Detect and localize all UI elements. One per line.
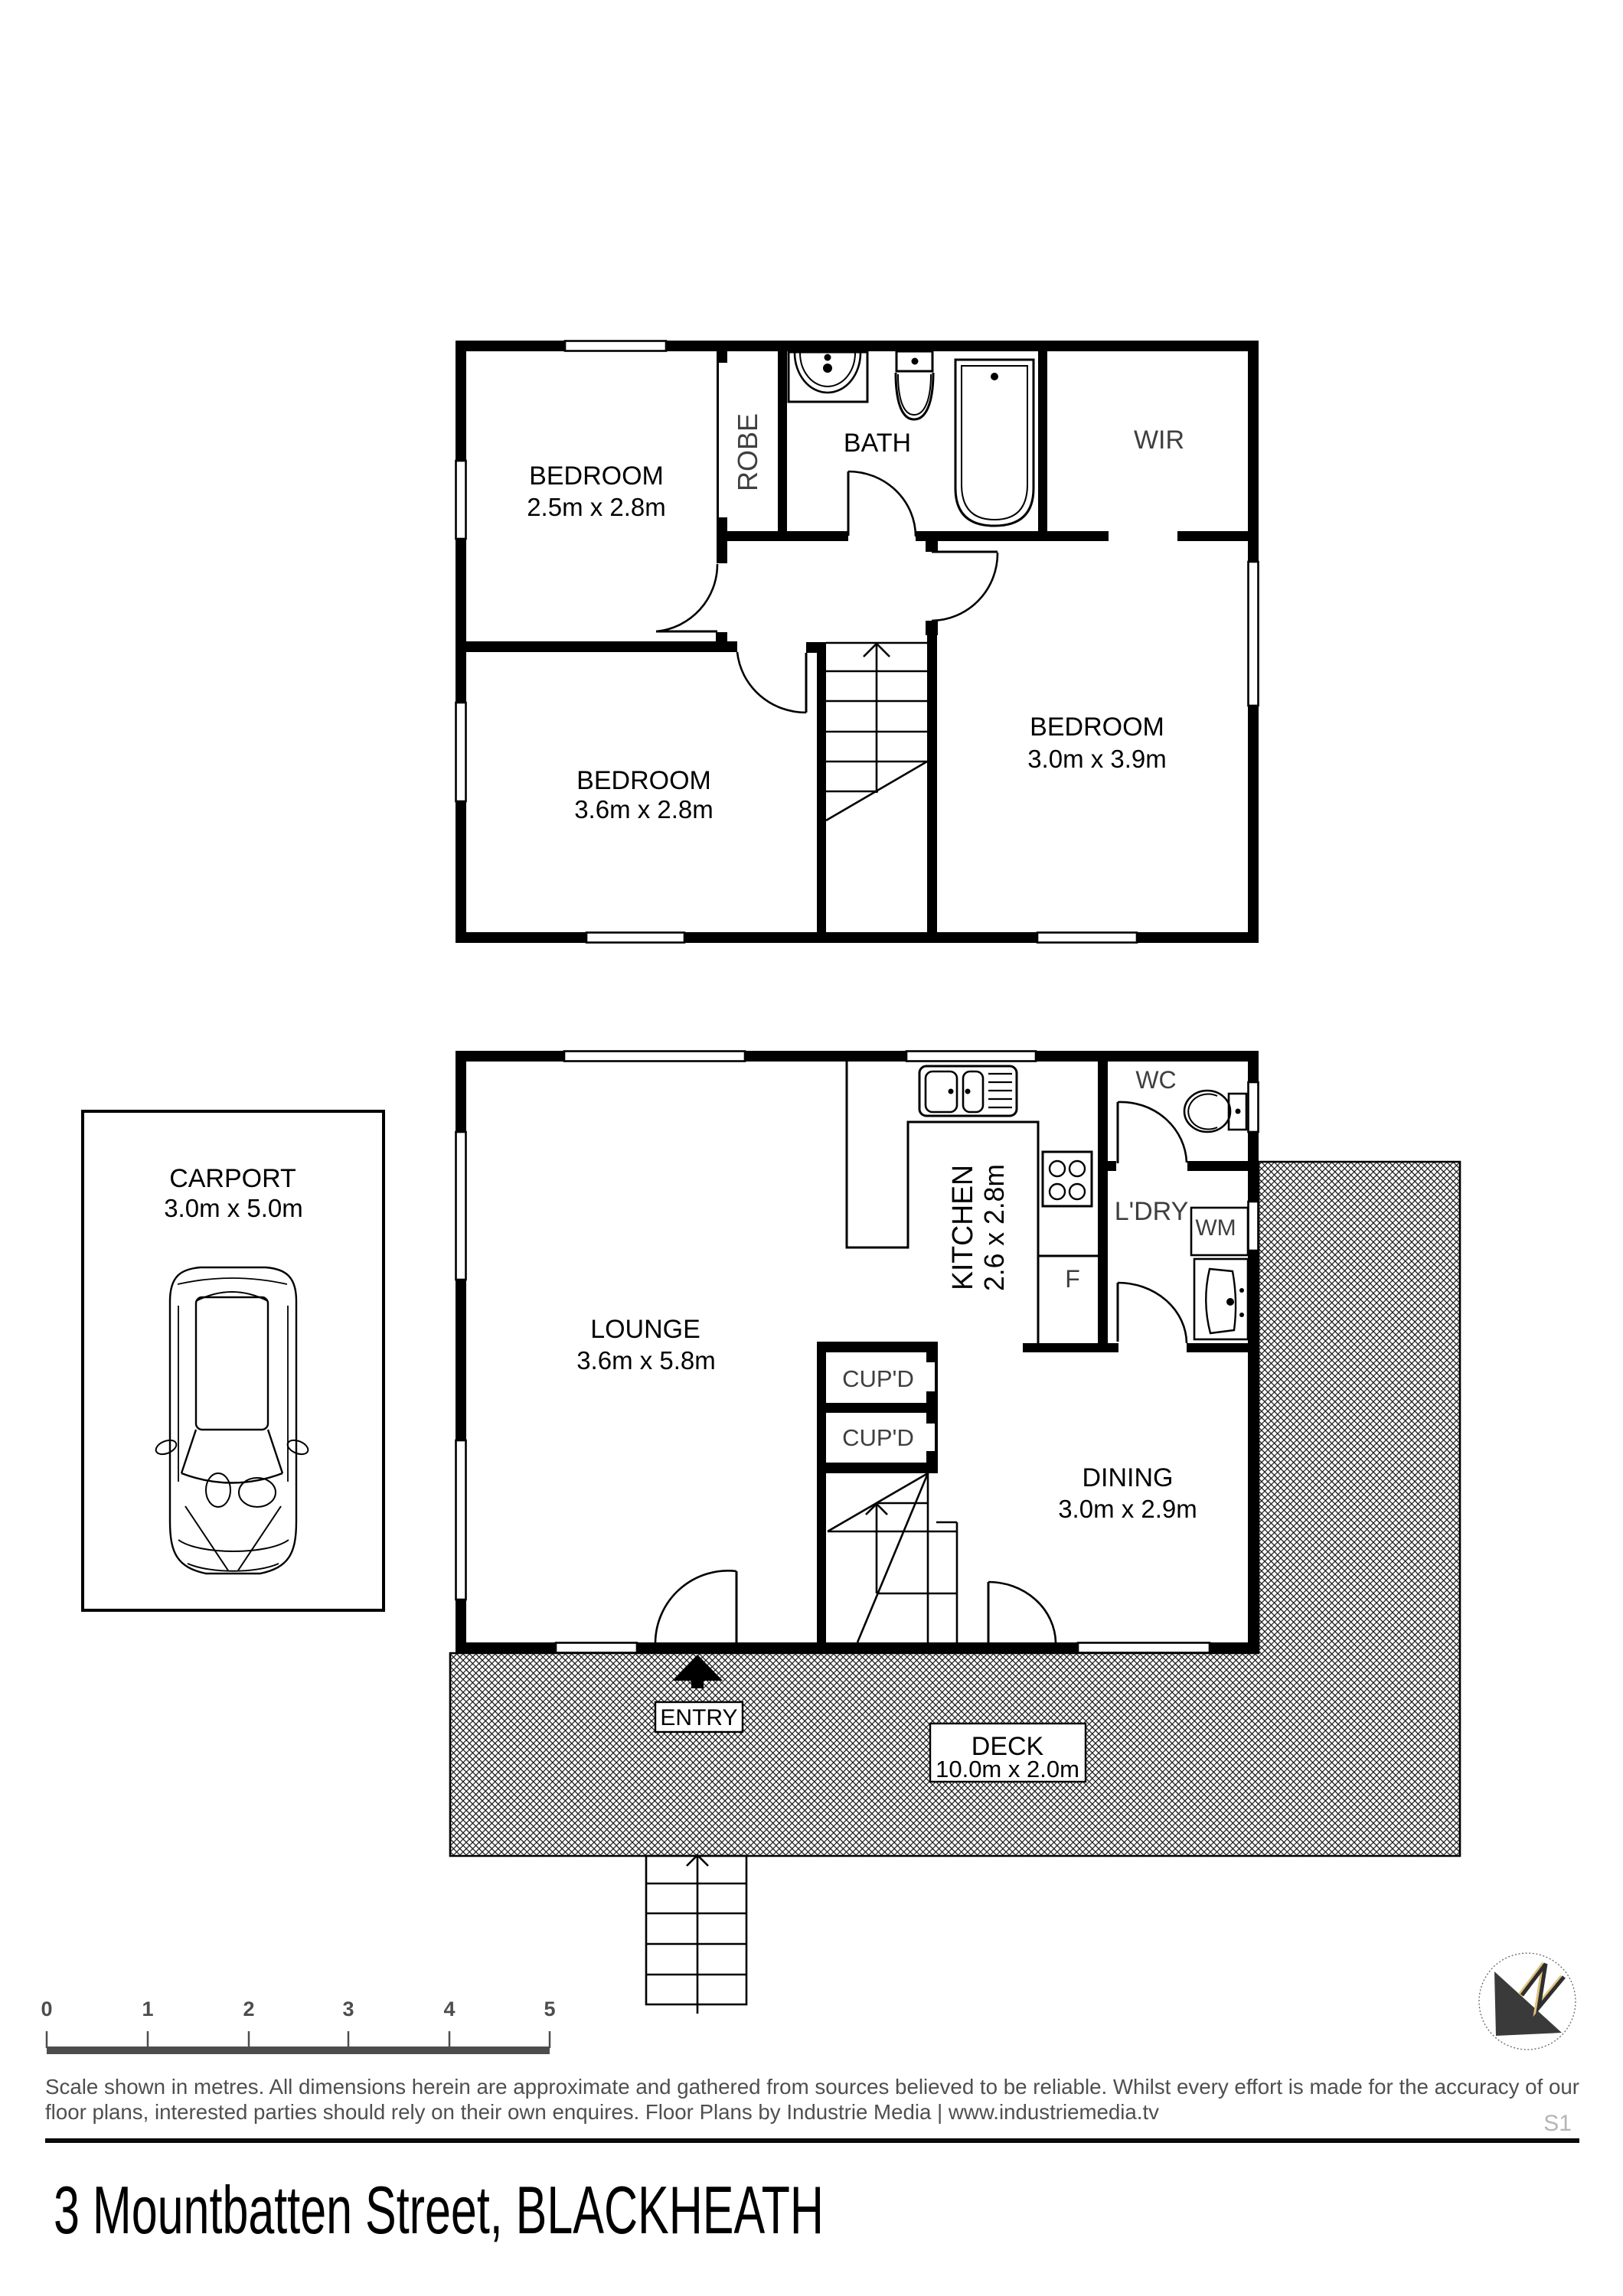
svg-text:CARPORT: CARPORT xyxy=(169,1164,296,1193)
svg-text:WC: WC xyxy=(1135,1066,1176,1094)
svg-text:F: F xyxy=(1065,1265,1080,1293)
svg-text:5: 5 xyxy=(544,1998,555,2020)
svg-text:3.0m x 2.9m: 3.0m x 2.9m xyxy=(1058,1495,1197,1523)
svg-text:3.6m x 5.8m: 3.6m x 5.8m xyxy=(576,1346,716,1375)
svg-text:CUP'D: CUP'D xyxy=(842,1424,914,1451)
svg-text:CUP'D: CUP'D xyxy=(842,1365,914,1392)
svg-text:10.0m x 2.0m: 10.0m x 2.0m xyxy=(936,1756,1079,1782)
svg-text:2: 2 xyxy=(243,1998,254,2020)
svg-text:LOUNGE: LOUNGE xyxy=(590,1315,700,1344)
svg-text:KITCHEN: KITCHEN xyxy=(947,1165,979,1290)
svg-text:1: 1 xyxy=(142,1998,153,2020)
svg-text:3.6m x 2.8m: 3.6m x 2.8m xyxy=(574,795,714,823)
svg-text:ROBE: ROBE xyxy=(732,413,763,491)
svg-text:BEDROOM: BEDROOM xyxy=(529,461,664,491)
svg-text:2.5m x 2.8m: 2.5m x 2.8m xyxy=(527,493,666,521)
svg-text:BATH: BATH xyxy=(844,429,911,458)
svg-text:floor plans, interested partie: floor plans, interested parties should r… xyxy=(45,2100,1159,2124)
svg-text:3 Mountbatten Street, BLACKHEA: 3 Mountbatten Street, BLACKHEATH xyxy=(54,2172,824,2248)
svg-text:2.6 x 2.8m: 2.6 x 2.8m xyxy=(978,1164,1010,1291)
svg-text:ENTRY: ENTRY xyxy=(660,1705,737,1730)
svg-text:3.0m x 3.9m: 3.0m x 3.9m xyxy=(1027,745,1167,773)
svg-text:BEDROOM: BEDROOM xyxy=(576,766,711,795)
svg-text:Scale shown in metres. All dim: Scale shown in metres. All dimensions he… xyxy=(45,2075,1579,2099)
svg-text:0: 0 xyxy=(41,1998,52,2020)
svg-text:BEDROOM: BEDROOM xyxy=(1030,713,1164,742)
svg-text:L'DRY: L'DRY xyxy=(1115,1197,1189,1226)
svg-text:WM: WM xyxy=(1195,1215,1236,1241)
svg-text:3.0m x 5.0m: 3.0m x 5.0m xyxy=(164,1194,303,1222)
svg-text:4: 4 xyxy=(443,1998,455,2020)
svg-text:DINING: DINING xyxy=(1083,1463,1174,1492)
svg-text:3: 3 xyxy=(342,1998,354,2020)
svg-text:WIR: WIR xyxy=(1134,426,1184,455)
svg-text:S1: S1 xyxy=(1543,2111,1572,2136)
